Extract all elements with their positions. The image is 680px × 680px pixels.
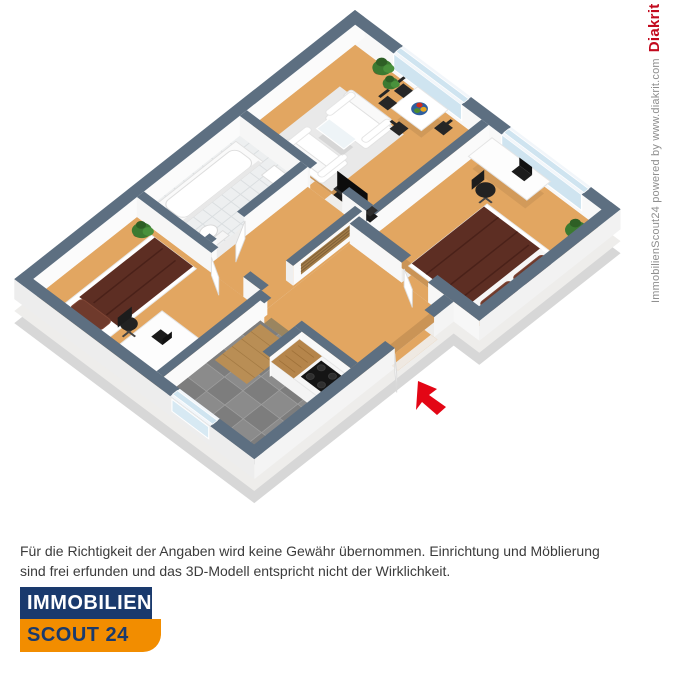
immobilienscout24-logo: IMMOBILIEN SCOUT 24 (20, 587, 161, 652)
floorplan-page: ImmobilienScout24 powered by www.diakrit… (0, 0, 680, 680)
watermark: ImmobilienScout24 powered by www.diakrit… (646, 33, 663, 303)
watermark-brand-diakrit: Diakrit (646, 3, 663, 52)
disclaimer-text: Für die Richtigkeit der Angaben wird kei… (20, 541, 650, 581)
entrance-arrow-icon (416, 381, 446, 415)
logo-immobilien-bar: IMMOBILIEN (20, 587, 152, 619)
logo-scout24-bar: SCOUT 24 (20, 619, 161, 652)
disclaimer-line-2: sind frei erfunden und das 3D-Modell ent… (20, 561, 650, 581)
watermark-credit: ImmobilienScout24 powered by www.diakrit… (650, 58, 662, 303)
disclaimer-line-1: Für die Richtigkeit der Angaben wird kei… (20, 541, 650, 561)
